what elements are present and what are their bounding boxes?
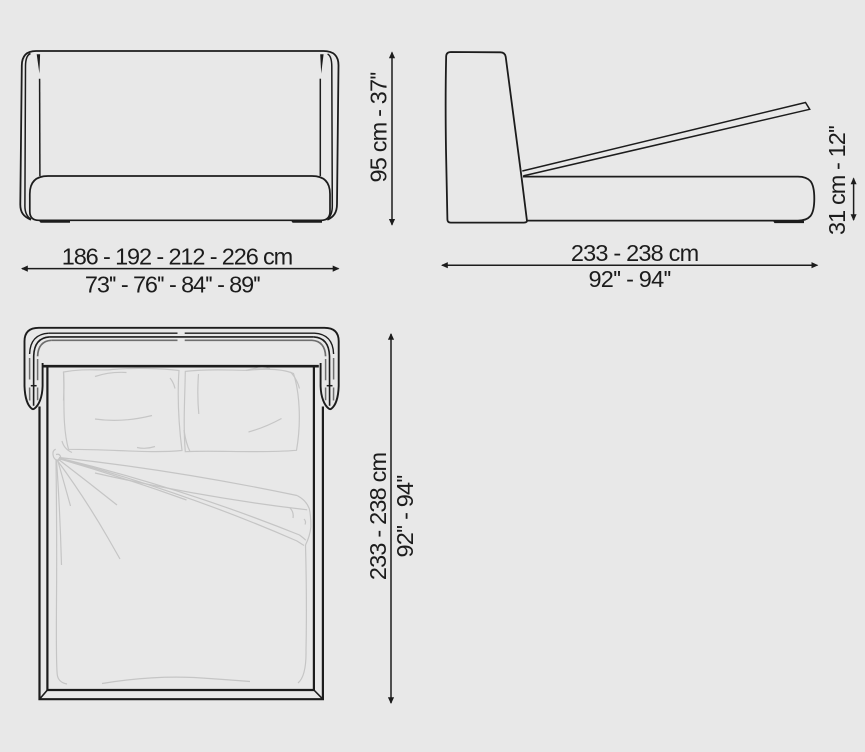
- svg-text:92'' - 94'': 92'' - 94'': [589, 266, 672, 292]
- svg-text:31 cm - 12'': 31 cm - 12'': [824, 125, 850, 235]
- svg-text:73'' - 76'' - 84'' - 89'': 73'' - 76'' - 84'' - 89'': [85, 271, 261, 297]
- svg-text:233 - 238 cm: 233 - 238 cm: [571, 240, 699, 266]
- svg-text:186 - 192 - 212 - 226 cm: 186 - 192 - 212 - 226 cm: [62, 244, 294, 270]
- svg-text:92'' - 94'': 92'' - 94'': [392, 475, 418, 558]
- svg-text:95 cm - 37'': 95 cm - 37'': [366, 72, 392, 183]
- svg-text:233 - 238 cm: 233 - 238 cm: [365, 452, 391, 580]
